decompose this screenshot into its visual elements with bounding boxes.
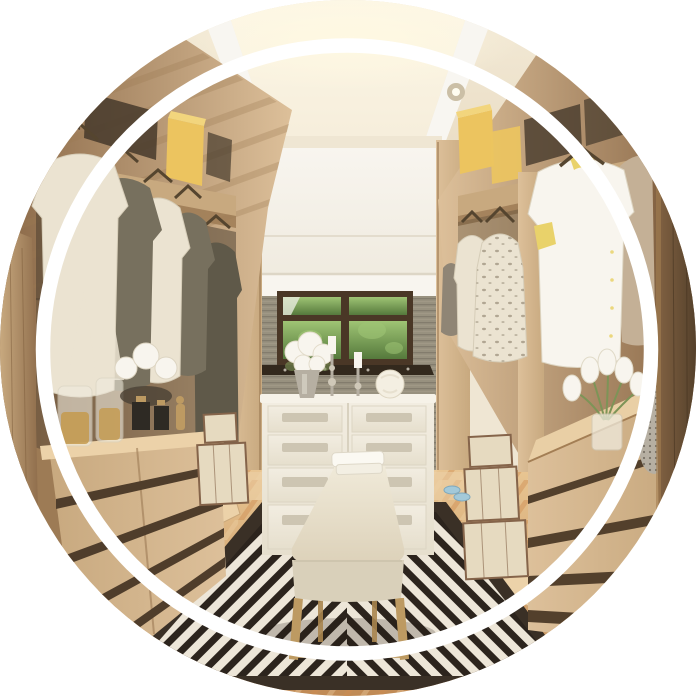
foliage-highlight [385,342,403,354]
foliage-highlight [358,321,386,339]
bottle-cap [136,396,146,402]
folded-towels [332,451,385,475]
vase-highlight [302,374,307,394]
glass-tulip-vase [592,414,622,450]
blue-slipper [454,493,470,501]
floral-dress-pattern [473,234,527,362]
walk-in-closet-photo: Circular cropped photo of a luxury walk-… [0,0,696,696]
bench-leg-rear [372,598,377,642]
white-candle [354,352,362,368]
jar-contents [99,408,120,440]
trunk [469,435,513,467]
right-cubby-shadow [584,86,632,146]
trunk [197,443,248,505]
circular-photo-card: Circular cropped photo of a luxury walk-… [0,0,696,696]
gold-figurine [176,396,184,404]
bottle-cap [157,400,165,405]
bench-leg-rear [318,598,323,642]
blue-slipper [444,486,460,494]
dresser-top-slab [260,394,436,403]
jar-contents [61,412,89,444]
left-cubby-shadow [38,78,82,130]
black-perfume-bottle [132,402,150,430]
yellow-box-left [166,111,206,186]
lotus-flower [155,357,177,379]
trunk [204,413,237,443]
trunk [464,467,519,522]
trunk [463,520,528,579]
gold-figurine [176,404,185,430]
black-perfume-bottle [154,406,169,430]
bench-cushion-front [292,560,404,602]
white-candle [328,336,336,354]
window-pane-tr [349,297,407,315]
white-shirt-yellow-trim [528,159,634,367]
left-cubby-shadow [206,132,232,182]
